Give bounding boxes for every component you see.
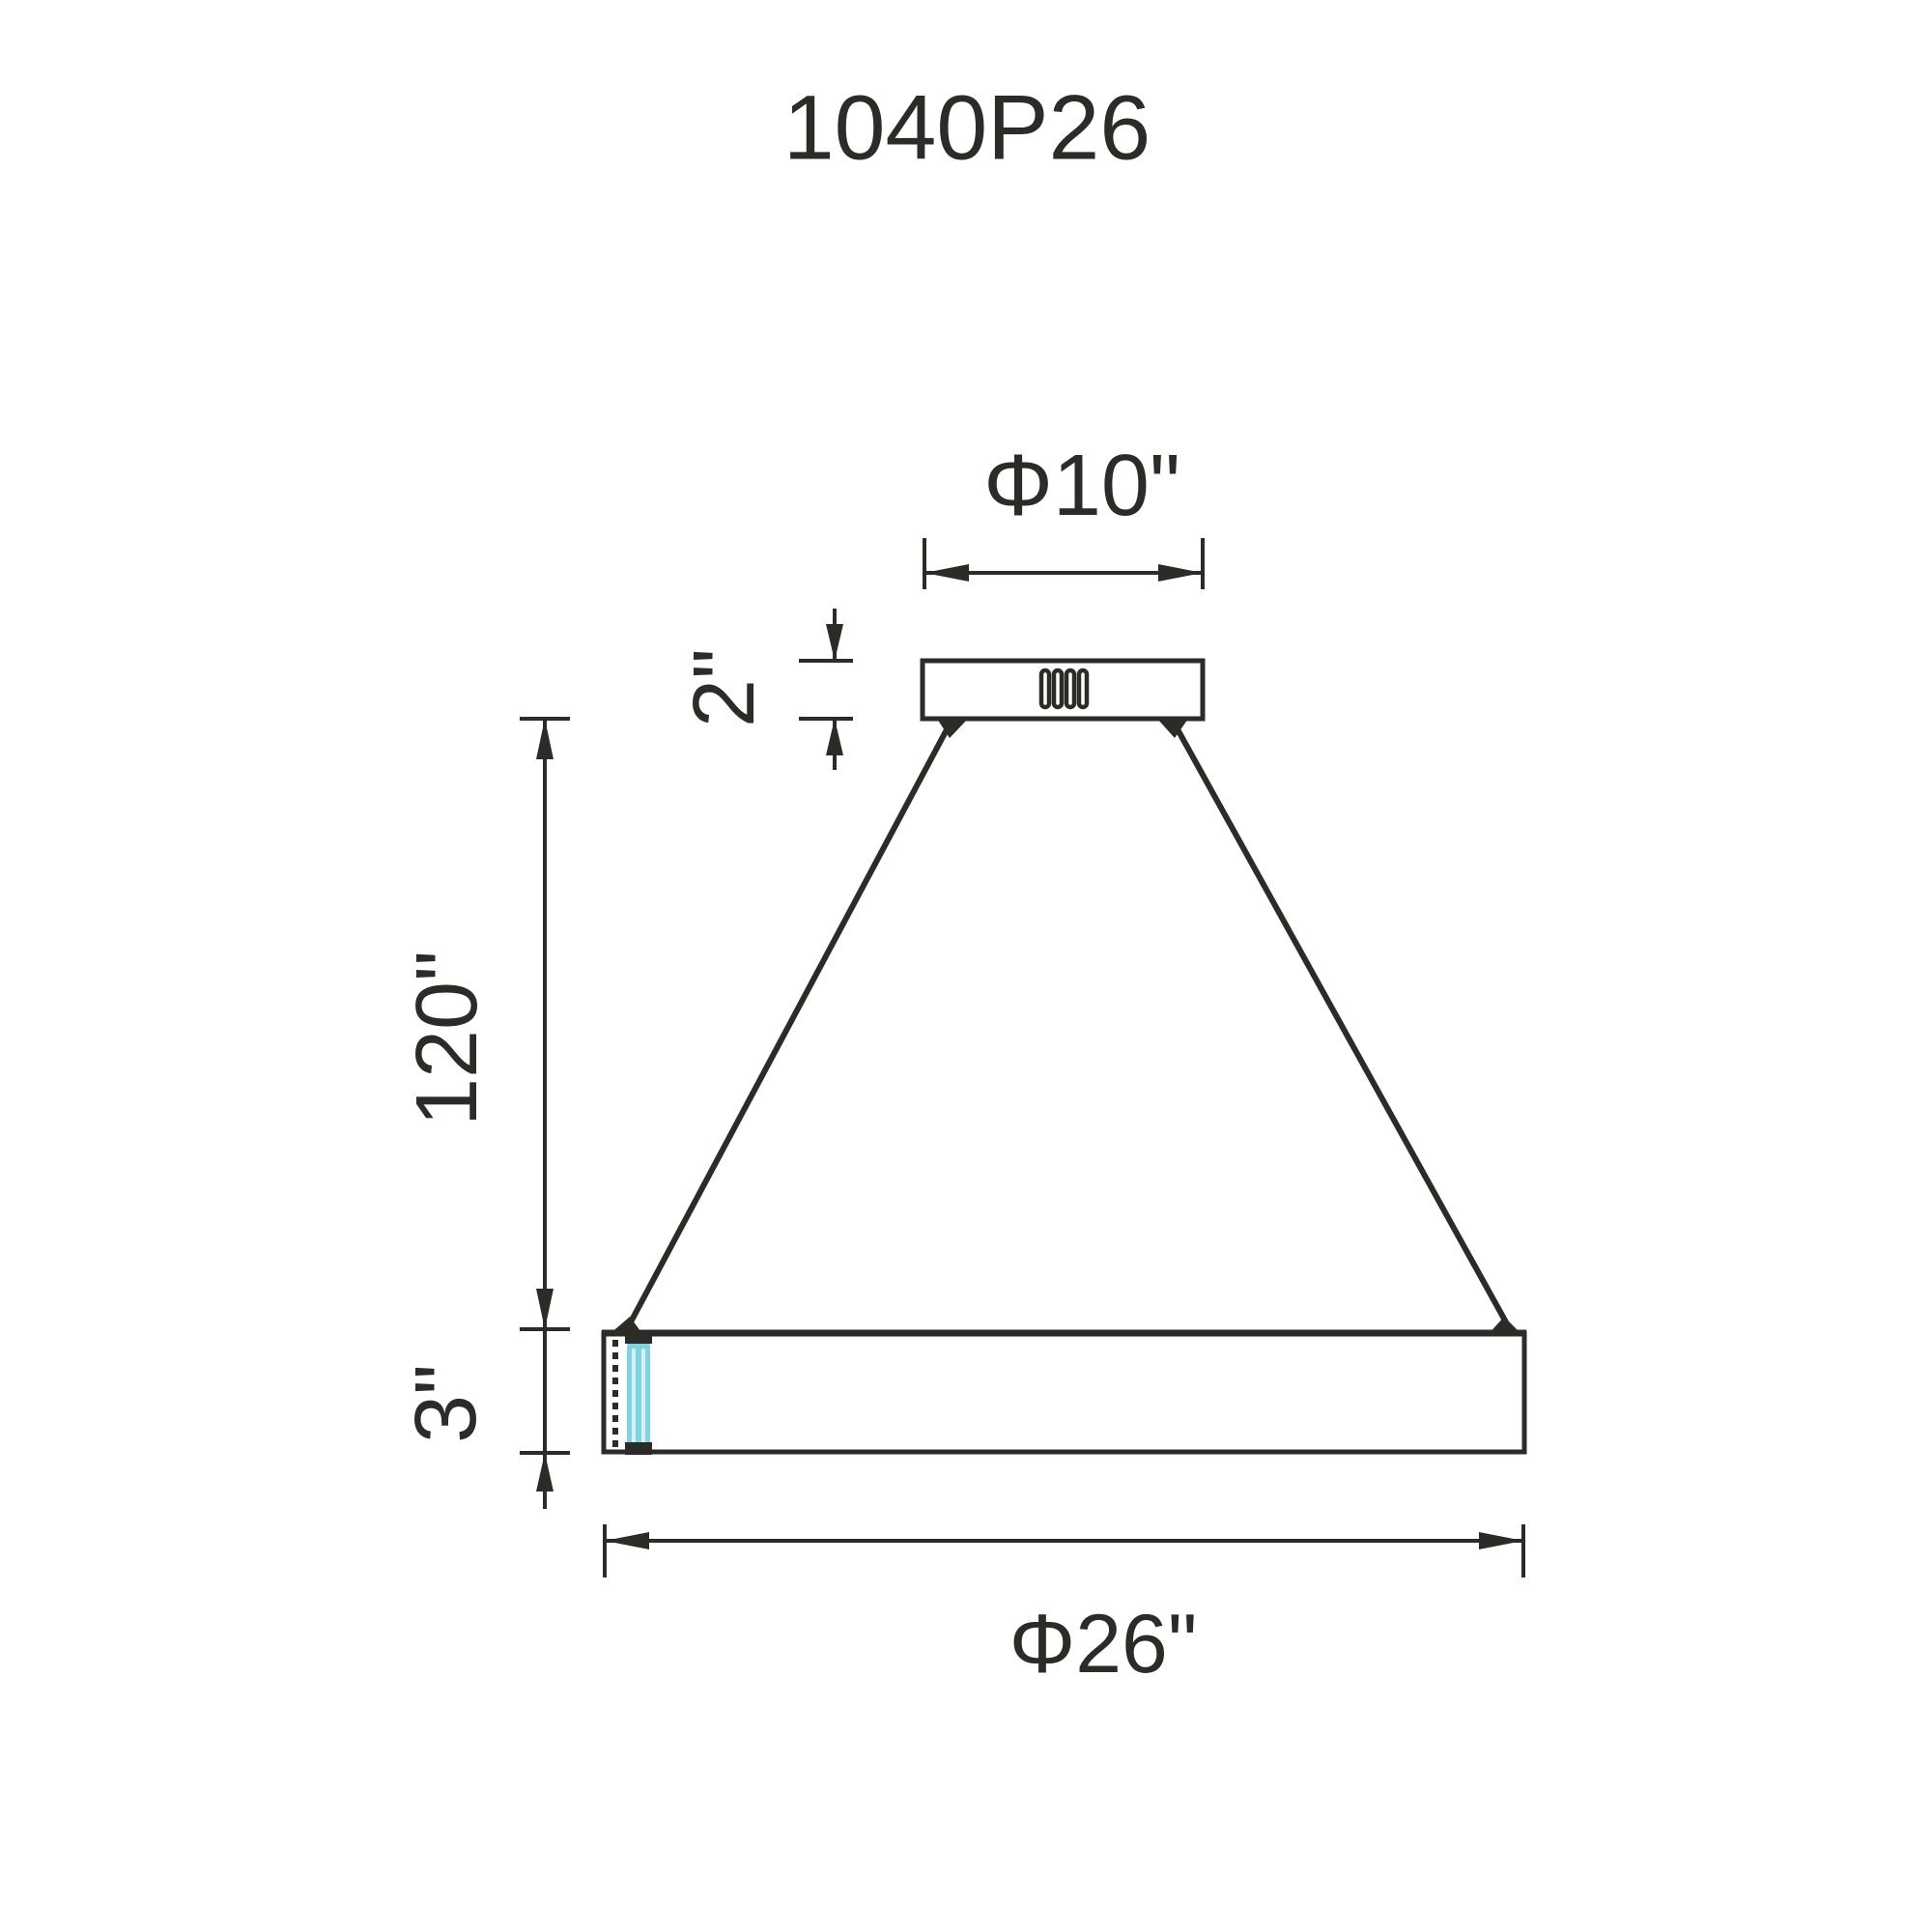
dim-canopy-diameter <box>924 538 1203 589</box>
dim-ring-height <box>520 1453 570 1509</box>
dim-ring-diameter <box>605 1524 1523 1577</box>
led-tube <box>627 1337 650 1455</box>
ring-body <box>604 1333 1524 1452</box>
dim-arrow-right <box>1158 564 1203 582</box>
suspension-cable-left <box>627 721 952 1329</box>
dim-arrow-down <box>826 624 843 661</box>
canopy-vent-slot <box>1054 670 1062 707</box>
dim-arrow-left <box>605 1532 649 1549</box>
dimension-drawing-canvas: 1040P26 Φ10" 2" 120" 3" Φ26" <box>0 0 1932 1932</box>
dim-arrow-left <box>924 564 969 582</box>
suspension-cable-right <box>1173 721 1510 1329</box>
light-ring <box>602 1333 1526 1452</box>
canopy-vent-slot <box>1041 670 1049 707</box>
canopy <box>923 661 1203 719</box>
dim-canopy-height <box>799 609 853 770</box>
label-canopy-height: 2" <box>681 648 768 727</box>
led-end-cap-top <box>625 1331 652 1344</box>
canopy-vent-slot <box>1066 670 1074 707</box>
suspension-cables <box>609 719 1522 1335</box>
label-ring-diameter: Φ26" <box>1009 1603 1198 1686</box>
dim-arrow-down <box>536 1289 554 1329</box>
dim-arrow-up <box>536 1453 554 1492</box>
dim-suspension-length <box>520 719 570 1453</box>
dim-arrow-right <box>1479 1532 1523 1549</box>
pendant-light-diagram <box>0 0 1932 1932</box>
label-canopy-diameter: Φ10" <box>983 442 1180 529</box>
label-suspension-length: 120" <box>404 951 491 1126</box>
label-ring-height: 3" <box>403 1364 490 1443</box>
dim-arrow-up <box>826 719 843 755</box>
dim-arrow-up <box>536 719 554 759</box>
canopy-vent-slot <box>1079 670 1087 707</box>
label-model-number: 1040P26 <box>783 83 1151 175</box>
led-strip <box>625 1331 652 1455</box>
led-end-cap-bottom <box>625 1442 652 1455</box>
